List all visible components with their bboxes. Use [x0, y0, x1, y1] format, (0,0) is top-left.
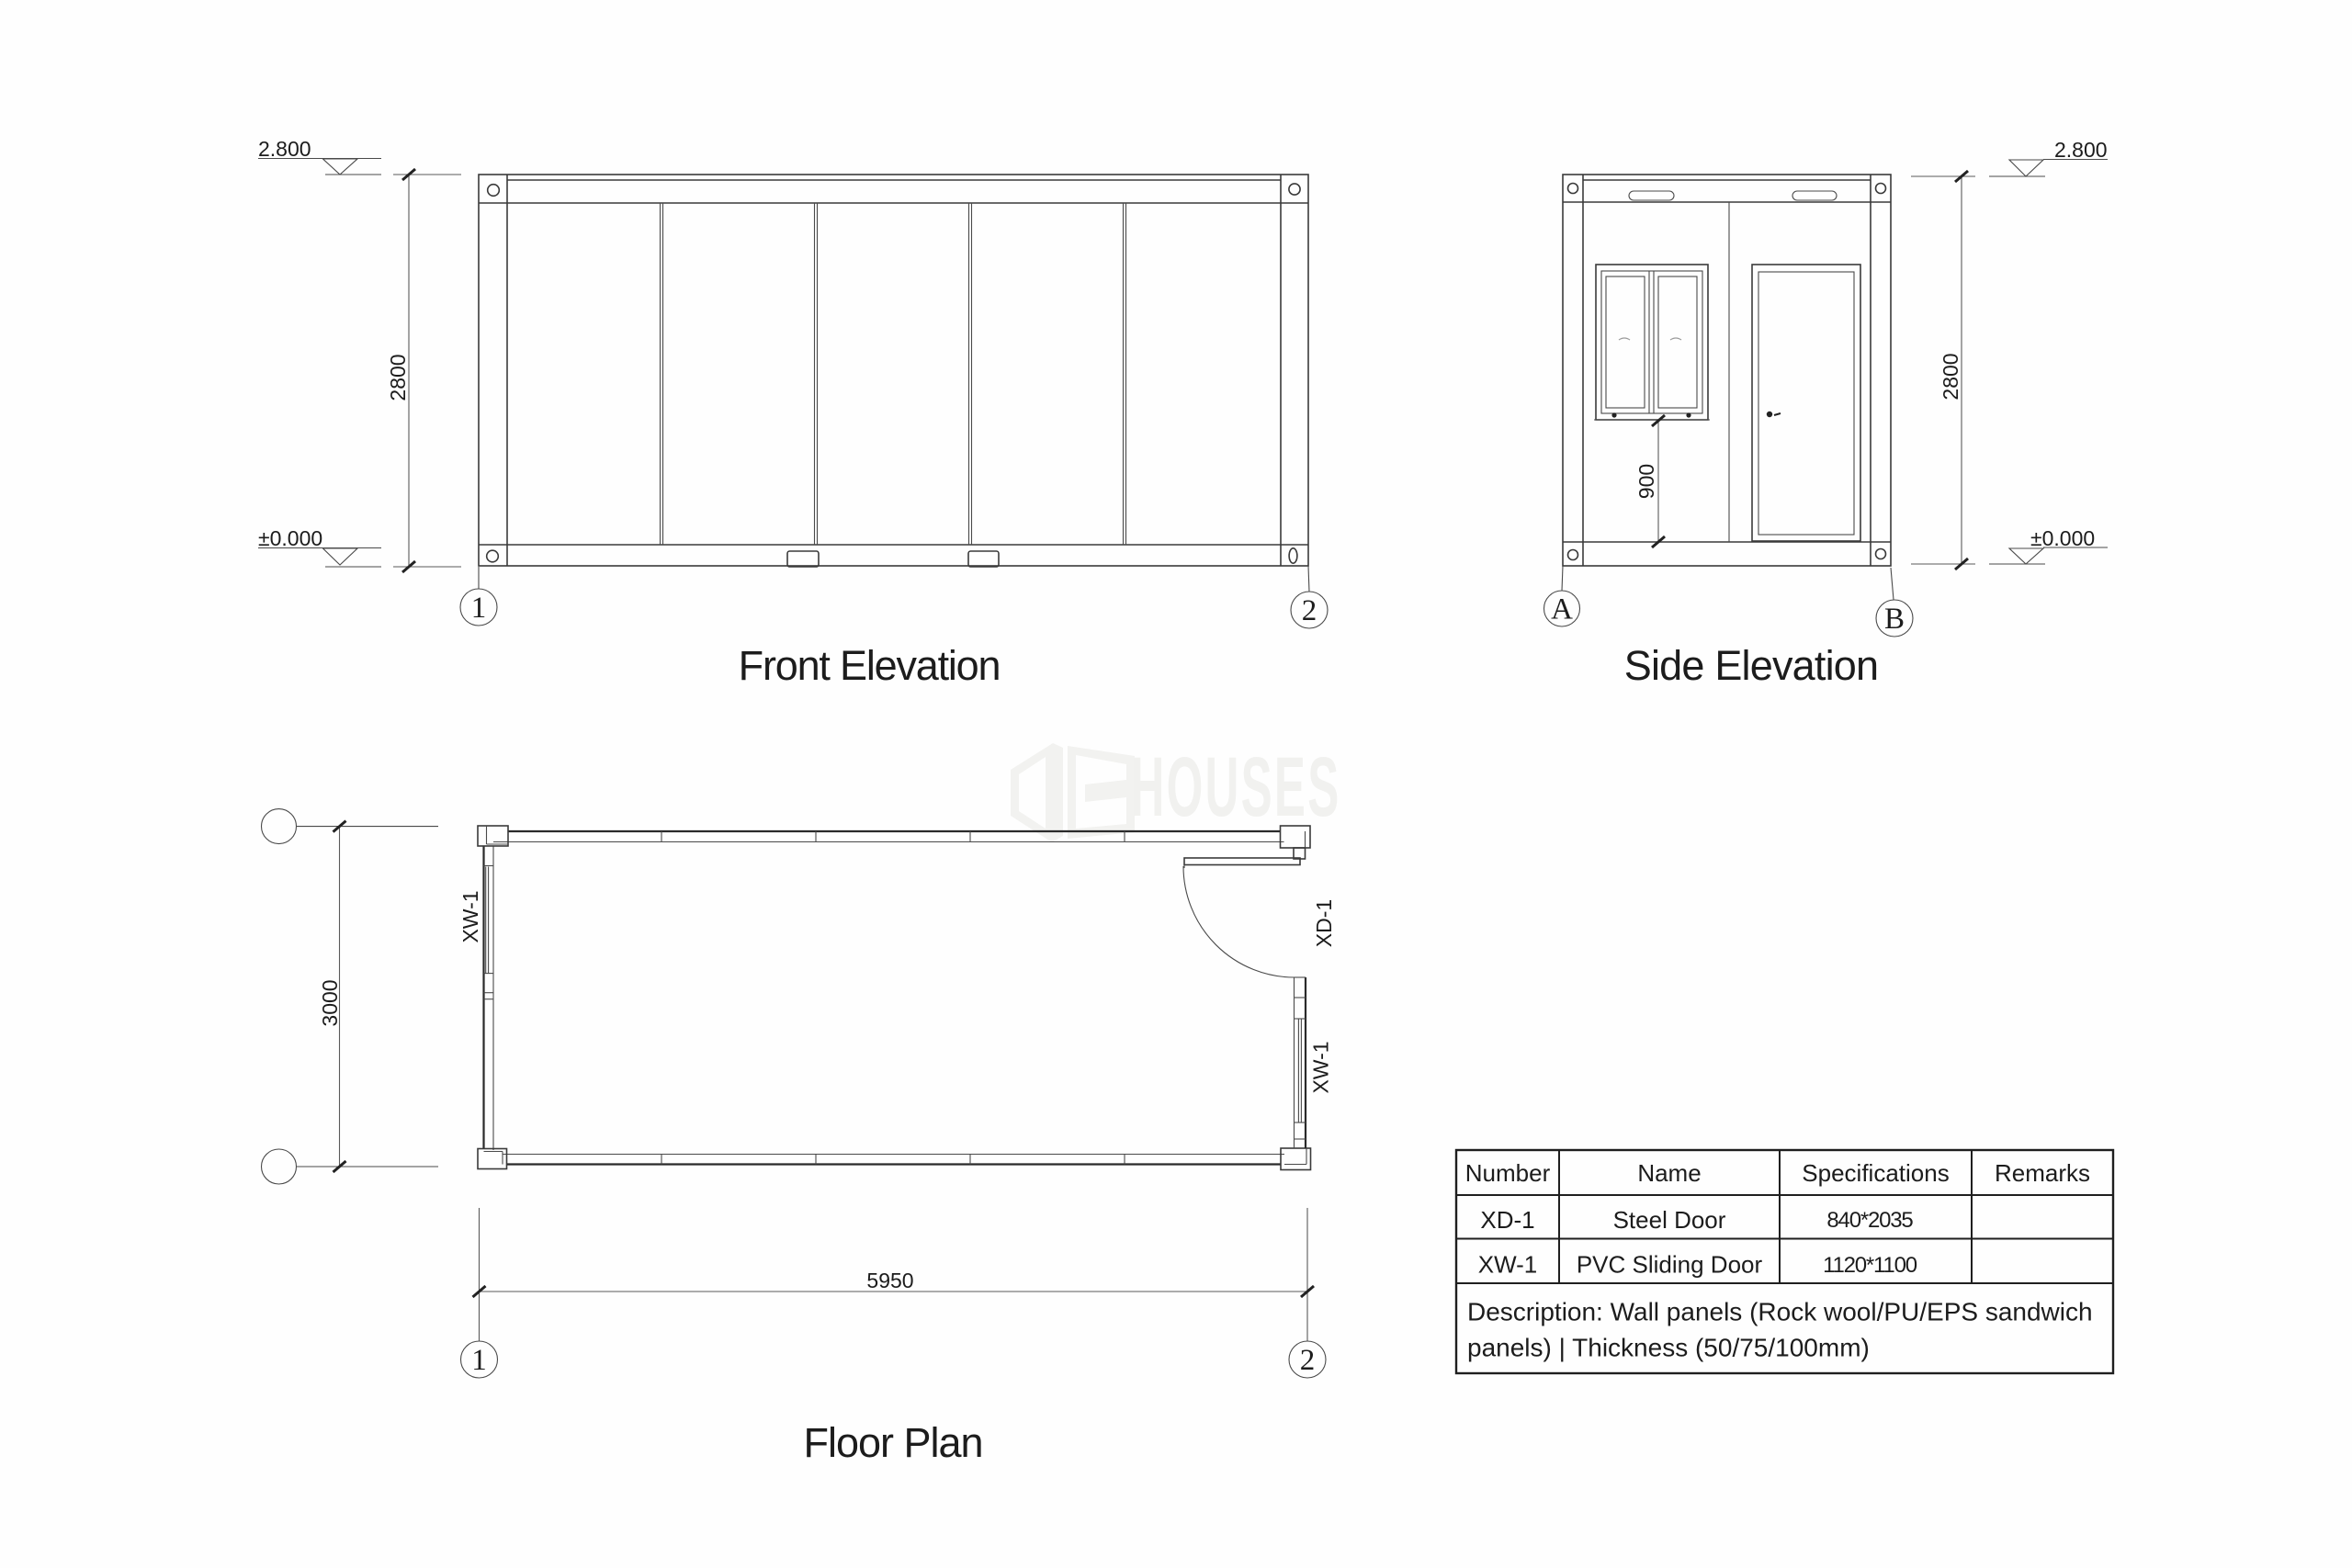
svg-text:Description: Wall panels (Rock: Description: Wall panels (Rock wool/PU/E…	[1467, 1298, 2093, 1326]
svg-text:XW-1: XW-1	[1309, 1041, 1333, 1093]
svg-text:Name: Name	[1637, 1159, 1701, 1187]
svg-text:2.800: 2.800	[258, 137, 311, 161]
svg-text:±0.000: ±0.000	[2030, 526, 2095, 550]
svg-text:HOUSES: HOUSES	[1131, 739, 1341, 834]
svg-text:3000: 3000	[318, 979, 342, 1026]
svg-text:2800: 2800	[386, 354, 410, 400]
svg-text:2.800: 2.800	[2054, 138, 2108, 162]
svg-text:Number: Number	[1465, 1159, 1551, 1187]
svg-text:1120*1100: 1120*1100	[1823, 1253, 1917, 1278]
svg-text:±0.000: ±0.000	[258, 526, 322, 550]
svg-text:panels) | Thickness (50/75/100: panels) | Thickness (50/75/100mm)	[1467, 1334, 1870, 1362]
svg-text:1: 1	[471, 1344, 487, 1377]
svg-text:PVC Sliding Door: PVC Sliding Door	[1577, 1251, 1763, 1279]
svg-text:Remarks: Remarks	[1995, 1159, 2090, 1187]
svg-text:A: A	[1551, 593, 1573, 626]
svg-text:1: 1	[471, 592, 487, 625]
svg-text:XD-1: XD-1	[1312, 899, 1336, 947]
svg-text:840*2035: 840*2035	[1826, 1208, 1913, 1233]
svg-text:Floor Plan: Floor Plan	[803, 1419, 982, 1466]
svg-text:2: 2	[1302, 594, 1317, 627]
svg-text:XW-1: XW-1	[1478, 1251, 1538, 1279]
svg-text:Side Elevation: Side Elevation	[1624, 642, 1879, 689]
svg-text:Specifications: Specifications	[1802, 1159, 1949, 1187]
svg-text:2800: 2800	[1939, 353, 1962, 400]
svg-text:2: 2	[1300, 1344, 1316, 1377]
svg-text:B: B	[1884, 603, 1905, 636]
svg-text:Front Elevation: Front Elevation	[739, 642, 1001, 689]
svg-text:XW-1: XW-1	[458, 890, 482, 942]
svg-text:Steel Door: Steel Door	[1613, 1206, 1726, 1234]
svg-text:900: 900	[1634, 464, 1658, 499]
svg-text:5950: 5950	[866, 1269, 913, 1292]
svg-text:XD-1: XD-1	[1480, 1206, 1534, 1234]
